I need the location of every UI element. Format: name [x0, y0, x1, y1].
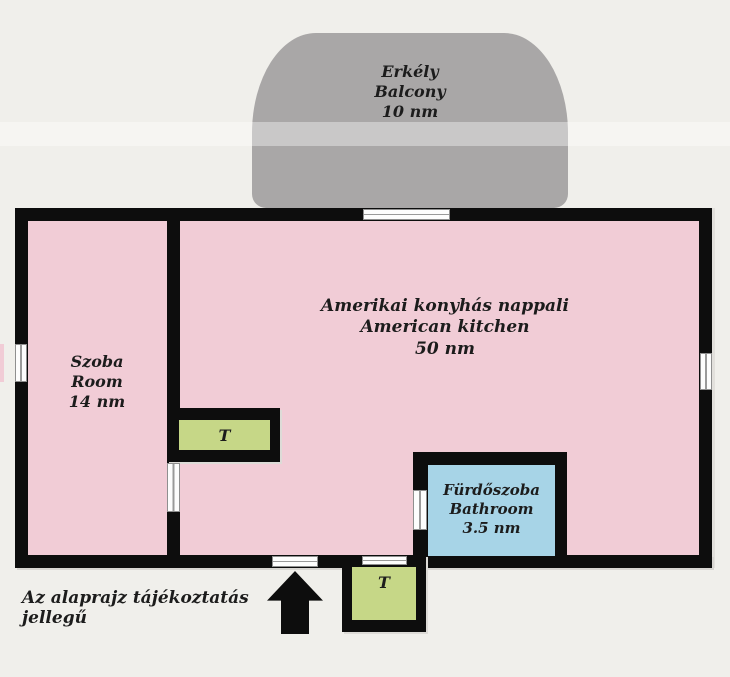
balcony-area-value: 10 nm — [320, 102, 500, 122]
door-room — [167, 463, 180, 512]
living-room-label: Amerikai konyhás nappali American kitche… — [295, 296, 595, 360]
storage-box-1: T — [179, 420, 270, 450]
bathroom-label: Fürdőszoba Bathroom 3.5 nm — [428, 481, 555, 537]
storage-1-label: T — [219, 426, 231, 445]
living-name-en: American kitchen — [295, 317, 595, 338]
disclaimer-note: Az alaprajz tájékoztatás jellegű — [22, 588, 272, 628]
entrance-arrow-icon — [267, 571, 323, 634]
light-band-artifact — [0, 122, 730, 146]
wall-left — [15, 208, 28, 568]
balcony-name-en: Balcony — [320, 82, 500, 102]
window-left — [15, 344, 27, 382]
bathroom-name-en: Bathroom — [428, 500, 555, 519]
living-area-value: 50 nm — [295, 339, 595, 360]
door-entrance — [272, 556, 318, 567]
storage-2-label: T — [378, 573, 390, 592]
door-bathroom — [413, 490, 427, 530]
window-top — [363, 209, 450, 220]
floor-plan: Erkély Balcony 10 nm T Fürdőszoba Bathro… — [0, 0, 730, 677]
window-right — [700, 353, 712, 390]
room-name-en: Room — [37, 372, 157, 392]
balcony-label: Erkély Balcony 10 nm — [320, 62, 500, 122]
storage-box-2: T — [352, 567, 416, 620]
living-name-hu: Amerikai konyhás nappali — [295, 296, 595, 317]
bathroom-name-hu: Fürdőszoba — [428, 481, 555, 500]
room-name-hu: Szoba — [37, 352, 157, 372]
balcony-name-hu: Erkély — [320, 62, 500, 82]
door-storage-2 — [362, 556, 407, 565]
floor-edge-artifact — [0, 344, 4, 382]
room-area-value: 14 nm — [37, 392, 157, 412]
room-label: Szoba Room 14 nm — [37, 352, 157, 412]
bathroom-area-value: 3.5 nm — [428, 519, 555, 538]
